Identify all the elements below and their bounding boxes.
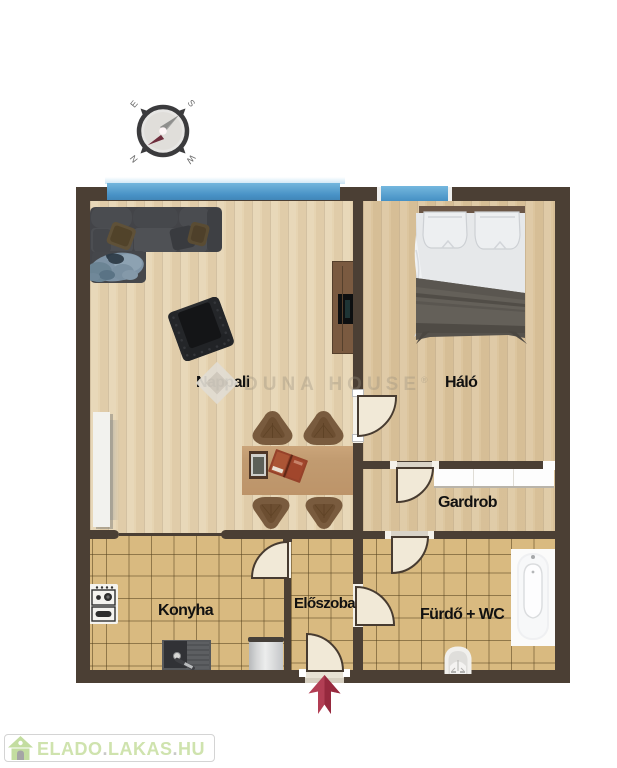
svg-text:N: N: [128, 153, 140, 164]
svg-text:E: E: [128, 98, 140, 109]
svg-text:W: W: [184, 153, 197, 166]
svg-text:S: S: [186, 98, 198, 109]
